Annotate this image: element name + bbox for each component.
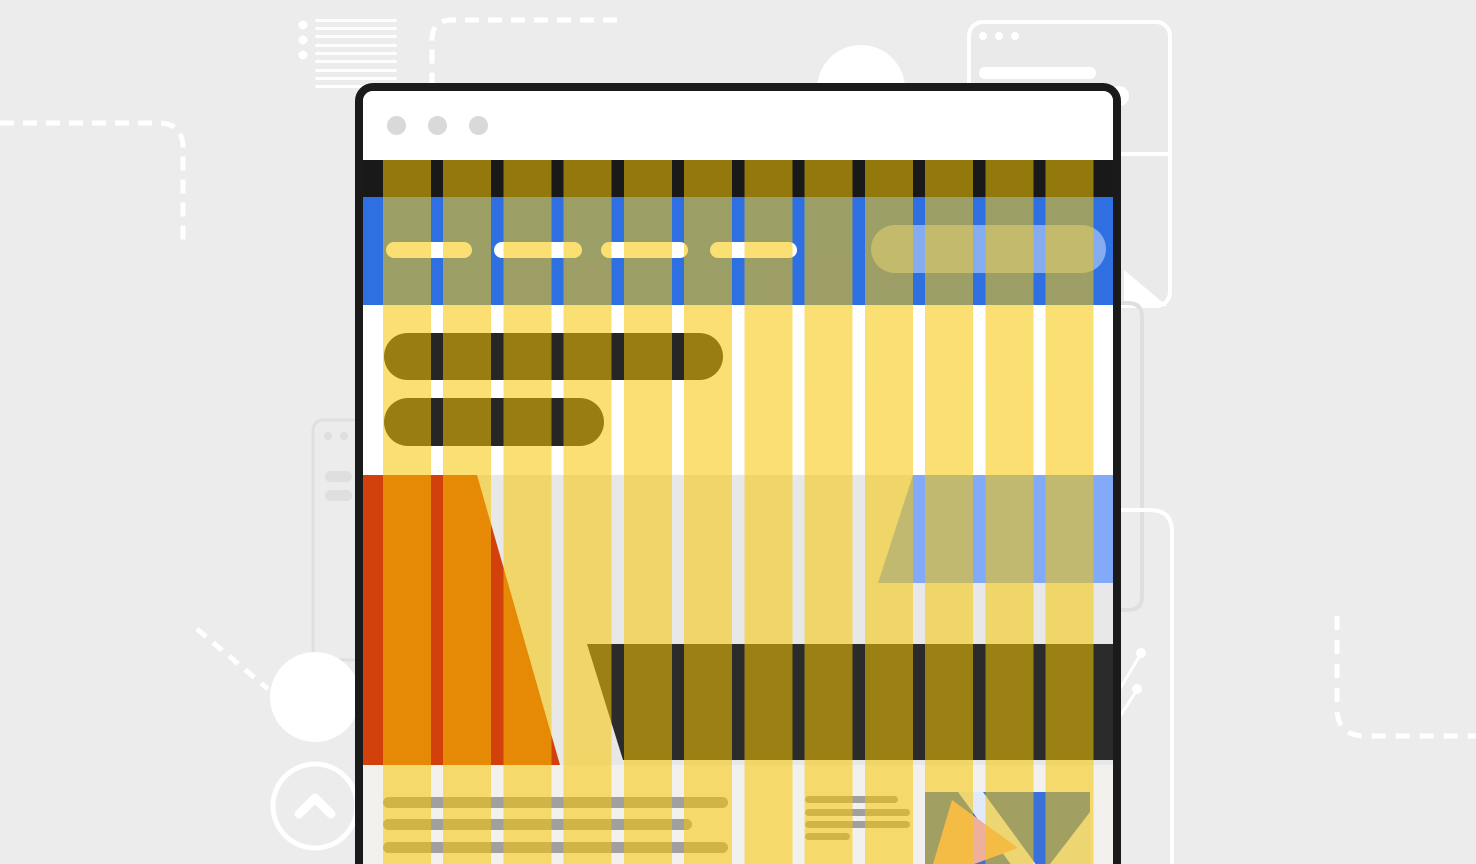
paragraph-line: [383, 797, 728, 808]
blue-banner-shape: [878, 475, 1113, 583]
gray-outline-card: [1118, 303, 1142, 610]
decorative-dots: [299, 21, 308, 60]
paragraph-line: [383, 819, 692, 830]
nav-link-pill-2[interactable]: [494, 242, 582, 258]
nav-bar: [363, 197, 1113, 305]
text-section: [363, 765, 1113, 864]
decorative-text-lines: [315, 19, 397, 88]
traffic-light-dot-1[interactable]: [387, 116, 406, 135]
dark-banner-shape: [587, 644, 1113, 760]
list-line: [805, 809, 910, 816]
decorative-circle-solid: [270, 652, 360, 742]
dashed-path-left: [0, 123, 183, 242]
dashed-path-right: [1337, 616, 1476, 736]
list-line: [805, 796, 898, 803]
nav-link-pill-4[interactable]: [710, 242, 797, 258]
heading-line-1: [384, 333, 723, 380]
nav-link-pill-1[interactable]: [386, 242, 472, 258]
heading-line-2: [384, 398, 604, 446]
traffic-light-dot-2[interactable]: [428, 116, 447, 135]
illustration-stage: [0, 0, 1476, 864]
dashed-diagonal-line: [197, 629, 268, 689]
nav-link-pill-3[interactable]: [601, 242, 688, 258]
page-content: [363, 160, 1113, 864]
titlebar: [363, 91, 1113, 160]
orange-shape: [363, 475, 560, 765]
browser-window: [355, 83, 1121, 864]
list-line: [805, 833, 850, 840]
traffic-light-dot-3[interactable]: [469, 116, 488, 135]
heading-section: [363, 305, 1113, 475]
image-thumbnail[interactable]: [925, 792, 1090, 864]
list-line: [805, 821, 910, 828]
hero-section: [363, 475, 1113, 765]
search-pill[interactable]: [871, 225, 1106, 273]
paragraph-line: [383, 842, 728, 853]
scroll-top-button[interactable]: [273, 764, 357, 848]
chevron-up-icon: [299, 798, 331, 814]
header-bar: [363, 160, 1113, 197]
dashed-path-top: [432, 20, 617, 84]
